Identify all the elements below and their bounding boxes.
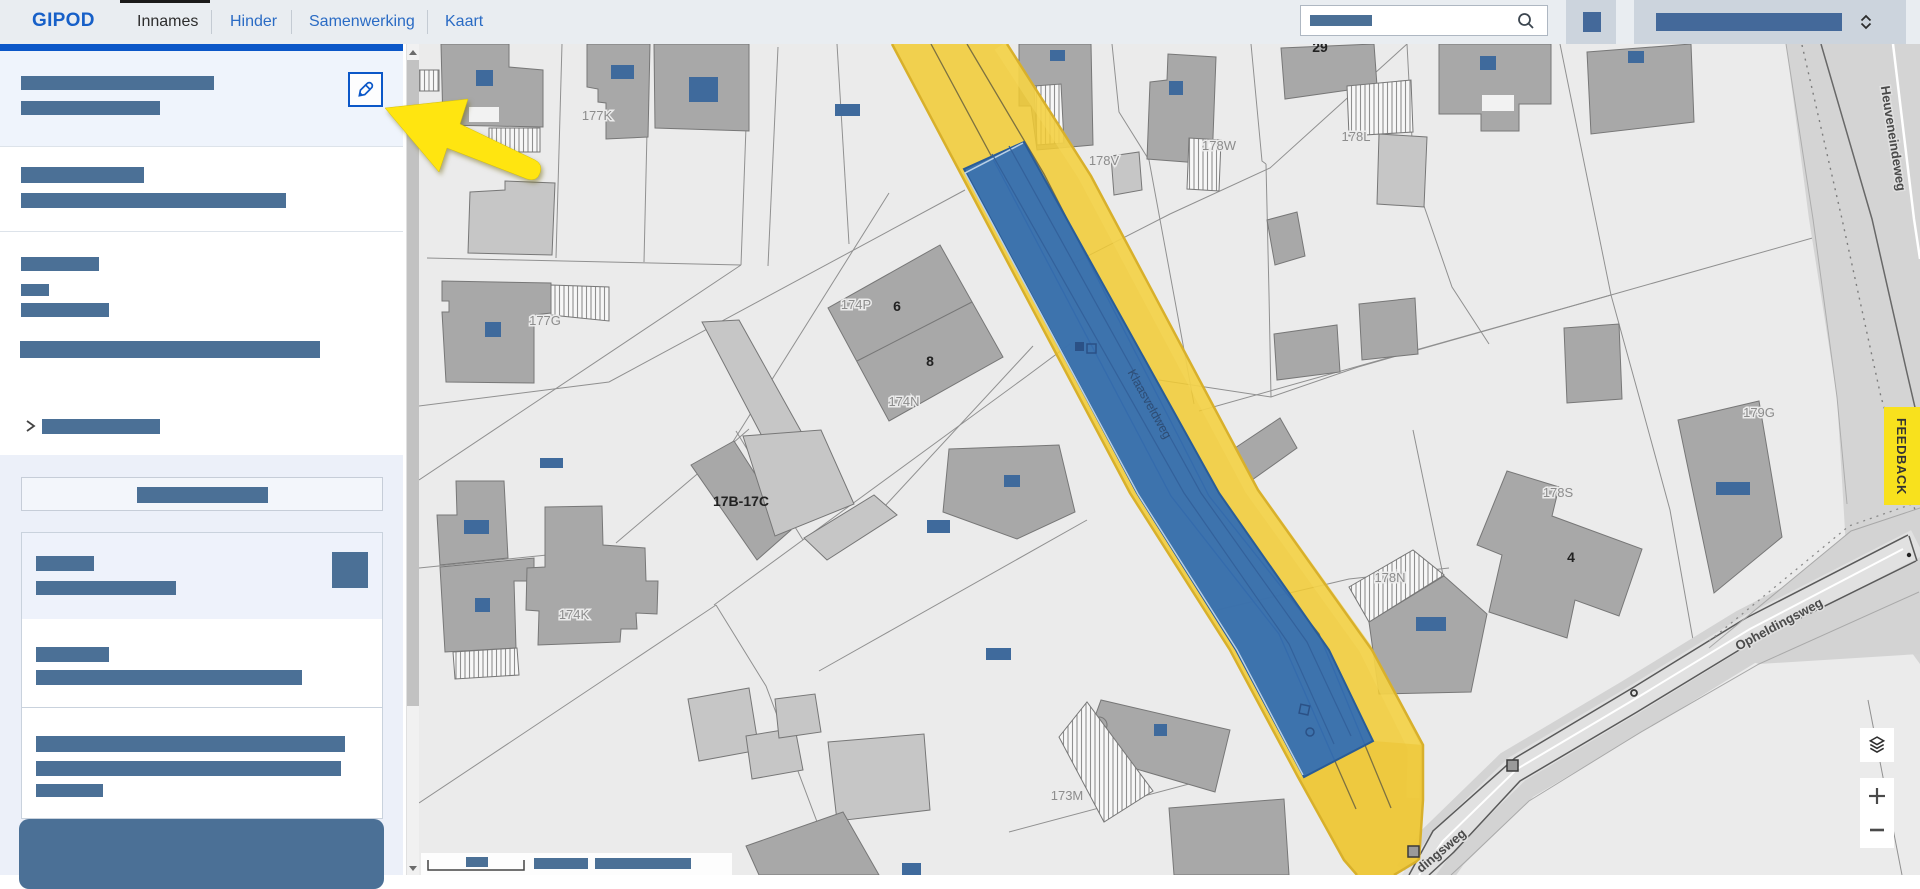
svg-text:174N: 174N xyxy=(888,394,919,409)
svg-text:17B-17C: 17B-17C xyxy=(713,493,769,509)
svg-text:178L: 178L xyxy=(1342,129,1371,144)
svg-text:179G: 179G xyxy=(1743,405,1775,420)
svg-text:178S: 178S xyxy=(1543,485,1574,500)
svg-text:178V: 178V xyxy=(1089,153,1120,168)
svg-text:174K: 174K xyxy=(559,607,590,622)
svg-text:177G: 177G xyxy=(529,313,561,328)
svg-text:173M: 173M xyxy=(1051,788,1084,803)
svg-text:178N: 178N xyxy=(1374,570,1405,585)
svg-text:6: 6 xyxy=(893,298,901,314)
svg-text:8: 8 xyxy=(926,353,934,369)
svg-text:178W: 178W xyxy=(1202,138,1237,153)
svg-text:177K: 177K xyxy=(582,108,613,123)
svg-text:4: 4 xyxy=(1567,549,1575,565)
svg-text:174P: 174P xyxy=(841,297,871,312)
svg-text:29: 29 xyxy=(1312,44,1328,55)
